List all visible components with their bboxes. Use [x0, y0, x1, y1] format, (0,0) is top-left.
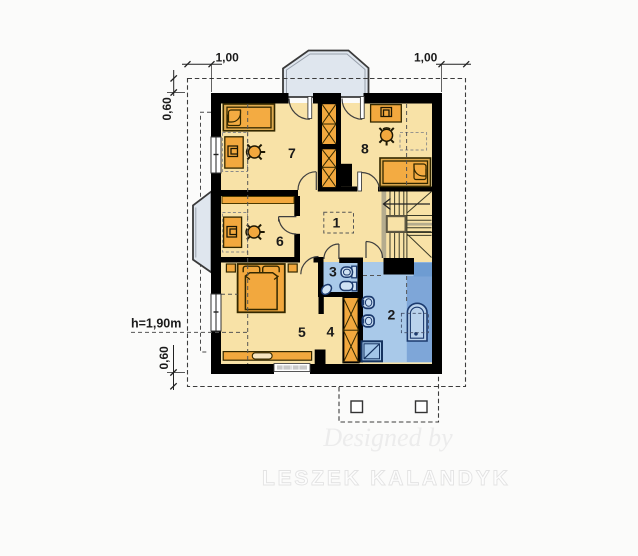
svg-text:6: 6: [276, 233, 284, 249]
svg-text:3: 3: [329, 264, 337, 280]
svg-text:1,00: 1,00: [414, 51, 438, 65]
svg-text:0,60: 0,60: [160, 97, 174, 121]
svg-text:h=1,90m: h=1,90m: [131, 317, 181, 331]
svg-text:1: 1: [333, 215, 341, 231]
svg-text:8: 8: [361, 141, 369, 157]
svg-text:7: 7: [288, 145, 296, 161]
svg-text:Designed by: Designed by: [322, 423, 453, 452]
svg-text:5: 5: [298, 324, 306, 340]
svg-text:1,00: 1,00: [216, 51, 240, 65]
svg-text:4: 4: [327, 324, 335, 340]
svg-text:LESZEK KALANDYK: LESZEK KALANDYK: [262, 467, 511, 490]
svg-text:2: 2: [388, 307, 396, 323]
svg-text:0,60: 0,60: [157, 346, 171, 370]
